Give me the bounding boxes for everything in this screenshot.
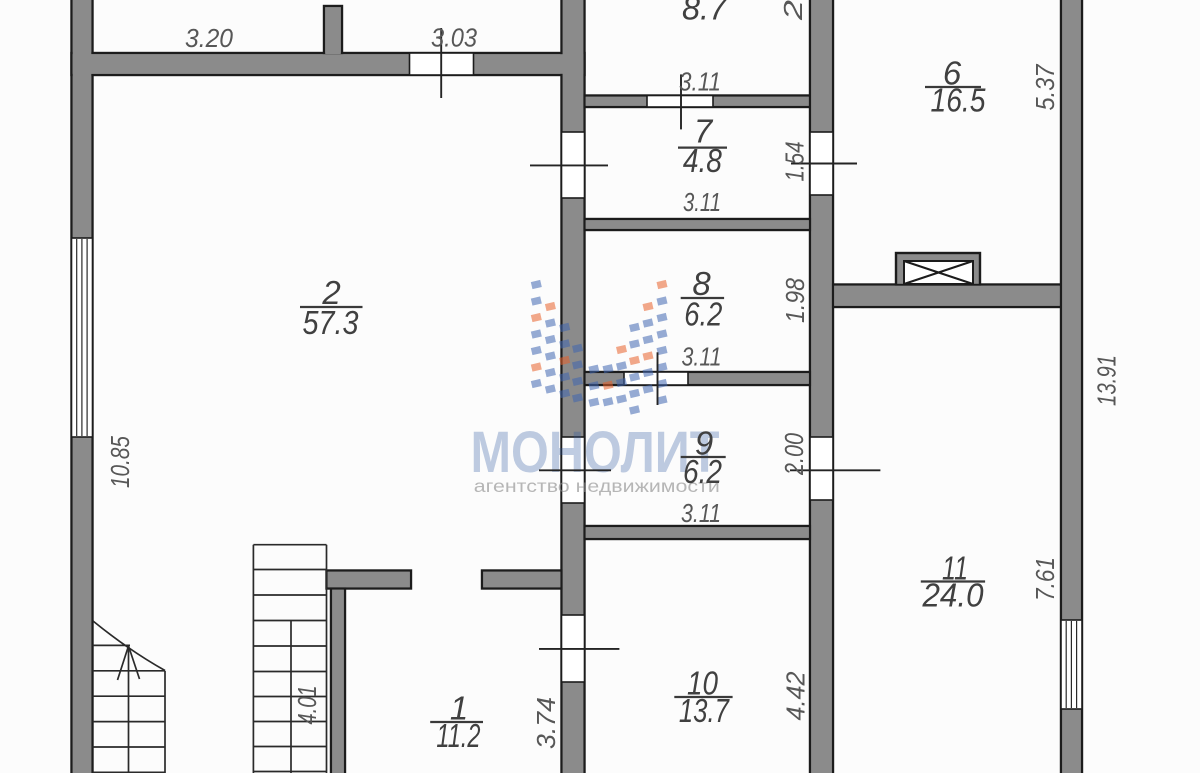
svg-text:3.11: 3.11 [679, 67, 721, 97]
svg-text:16.5: 16.5 [931, 82, 987, 119]
svg-text:3.74: 3.74 [531, 697, 561, 749]
svg-text:2.00: 2.00 [779, 433, 809, 476]
svg-text:10.85: 10.85 [105, 436, 135, 488]
svg-text:5.37: 5.37 [1030, 63, 1060, 110]
svg-text:4.01: 4.01 [292, 686, 322, 725]
svg-text:8.7: 8.7 [682, 0, 729, 27]
svg-text:6.2: 6.2 [684, 296, 722, 333]
svg-text:3.11: 3.11 [683, 187, 721, 217]
svg-text:3.11: 3.11 [682, 342, 722, 372]
svg-text:11.2: 11.2 [436, 717, 480, 754]
svg-text:6.2: 6.2 [683, 453, 722, 490]
svg-text:1.98: 1.98 [780, 278, 810, 323]
svg-text:57.3: 57.3 [303, 304, 360, 341]
svg-text:4.42: 4.42 [781, 671, 811, 721]
svg-text:4.8: 4.8 [683, 142, 723, 179]
svg-text:13.7: 13.7 [679, 692, 730, 729]
svg-text:1.54: 1.54 [780, 142, 810, 182]
svg-text:24.0: 24.0 [922, 577, 985, 614]
svg-text:7.61: 7.61 [1030, 557, 1060, 601]
svg-text:3.11: 3.11 [681, 498, 721, 528]
svg-text:13.91: 13.91 [1091, 355, 1121, 406]
svg-text:2.: 2. [778, 0, 808, 21]
svg-text:3.20: 3.20 [185, 23, 234, 53]
svg-text:3.03: 3.03 [431, 23, 477, 53]
